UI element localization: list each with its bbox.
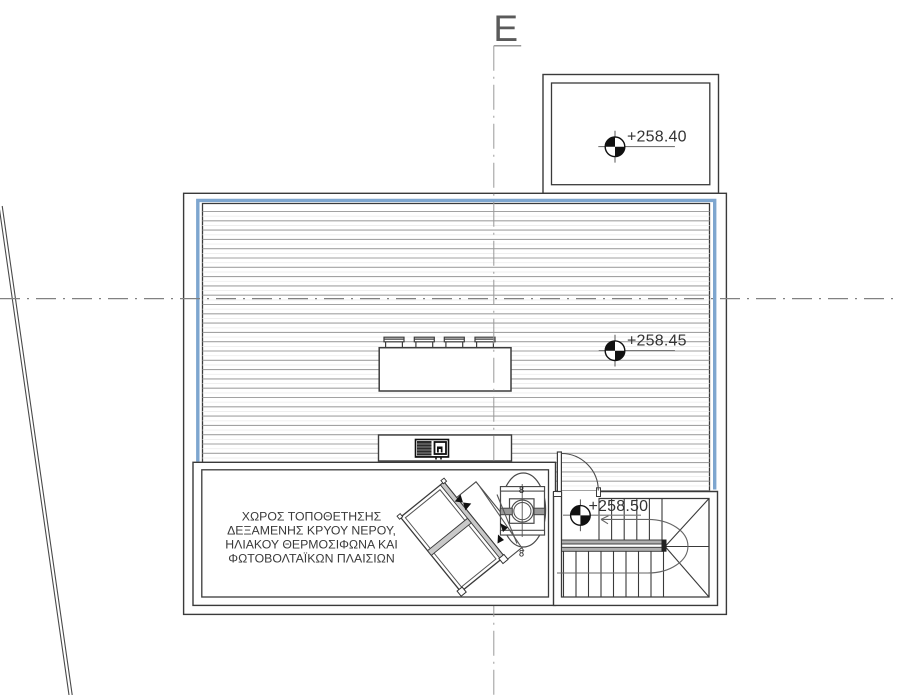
svg-text:+258.50: +258.50 (589, 498, 649, 515)
svg-text:8: 8 (519, 485, 524, 495)
svg-text:ΗΛΙΑΚΟΥ ΘΕΡΜΟΣΙΦΩΝΑ ΚΑΙ: ΗΛΙΑΚΟΥ ΘΕΡΜΟΣΙΦΩΝΑ ΚΑΙ (225, 538, 398, 552)
svg-text:ΔΕΞΑΜΕΝΗΣ ΚΡΥΟΥ ΝΕΡΟΥ,: ΔΕΞΑΜΕΝΗΣ ΚΡΥΟΥ ΝΕΡΟΥ, (227, 524, 396, 538)
svg-text:+258.40: +258.40 (627, 129, 687, 146)
svg-text:ΧΩΡΟΣ ΤΟΠΟΘΕΤΗΣΗΣ: ΧΩΡΟΣ ΤΟΠΟΘΕΤΗΣΗΣ (242, 510, 382, 524)
svg-text:+258.45: +258.45 (627, 332, 687, 349)
svg-text:ΦΩΤΟΒΟΛΤΑΪΚΩΝ ΠΛΑΙΣΙΩΝ: ΦΩΤΟΒΟΛΤΑΪΚΩΝ ΠΛΑΙΣΙΩΝ (228, 552, 394, 566)
svg-text:E: E (493, 8, 518, 49)
